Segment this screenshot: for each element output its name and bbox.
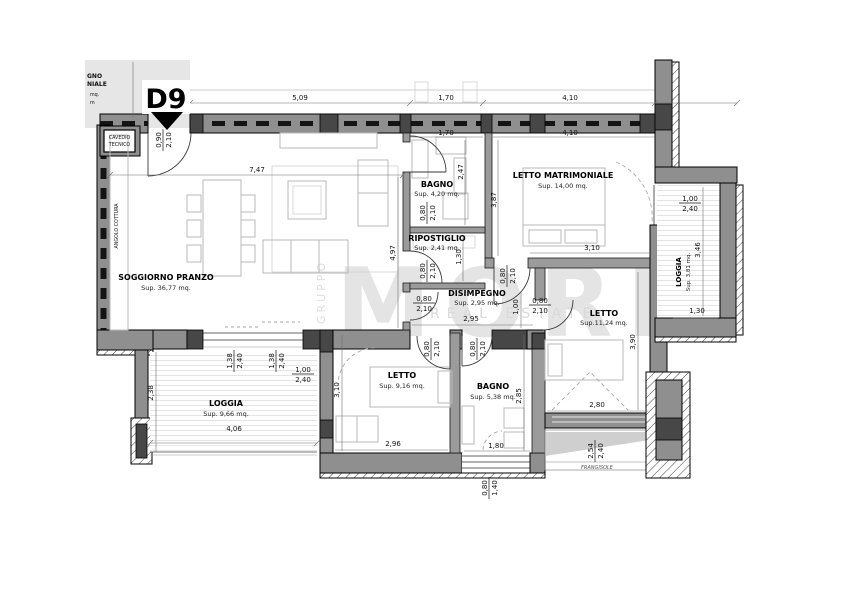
room-label-bagno1: BAGNO	[421, 180, 454, 189]
door-h: 2,10	[416, 305, 432, 313]
win-w: 1,38	[268, 353, 276, 369]
win-w: 0,80	[481, 480, 489, 496]
win-w: 1,00	[295, 366, 311, 374]
dim-390: 3,90	[629, 334, 637, 350]
cavedio-label-1: CAVEDIO	[109, 135, 131, 141]
win-w: 1,00	[682, 195, 698, 203]
door-w: 0,80	[416, 295, 432, 303]
win-w: 1,38	[226, 353, 234, 369]
room-label-loggia1: LOGGIA	[209, 399, 244, 408]
room-sup-bagno2: Sup. 5,38 mq.	[470, 393, 516, 401]
dim-280: 2,80	[589, 401, 605, 409]
room-sup-letto3: Sup. 9,16 mq.	[379, 382, 425, 390]
legend-line-4: m	[90, 101, 95, 106]
door-w: 0,80	[419, 205, 427, 221]
room-label-bagno2: BAGNO	[477, 382, 510, 391]
room-sup-letto-matrimoniale: Sup. 14,00 mq.	[538, 182, 588, 190]
dim-509: 5,09	[292, 94, 308, 102]
dim-310-letto3: 3,10	[333, 382, 341, 398]
frangisole-label: FRANGISOLE	[581, 465, 614, 471]
marker-text: D9	[145, 84, 186, 115]
door-h: 2,10	[479, 341, 487, 357]
room-label-letto2: LETTO	[590, 309, 619, 318]
win-h: 2,40	[597, 443, 605, 459]
dim-100-disimpegno: 1,00	[512, 299, 520, 315]
cavedio-box	[104, 130, 135, 152]
legend-line-1: GNO	[87, 73, 102, 80]
room-sup-bagno1: Sup. 4,20 mq.	[414, 190, 460, 198]
door-h: 2,10	[433, 341, 441, 357]
room-label-soggiorno: SOGGIORNO PRANZO	[118, 273, 214, 282]
win-w: 2,54	[587, 443, 595, 459]
dim-387: 3,87	[490, 192, 498, 208]
entry-h: 2,10	[165, 132, 173, 148]
room-sup-loggia1: Sup. 9,66 mq.	[203, 410, 249, 418]
room-label-angolo-cottura: ANGOLO COTTURA	[114, 203, 120, 249]
dim-346: 3,46	[694, 242, 702, 258]
dim-170-top: 1,70	[438, 94, 454, 102]
dim-238: 2,38	[147, 385, 155, 401]
dim-247: 2,47	[457, 164, 465, 180]
dim-747: 7,47	[249, 166, 265, 174]
door-w: 0,80	[423, 341, 431, 357]
win-h: 2,40	[278, 353, 286, 369]
dim-406: 4,06	[226, 425, 242, 433]
door-w: 0,80	[419, 263, 427, 279]
room-sup-letto2: Sup.11,24 mq.	[580, 319, 628, 327]
win-h: 2,40	[682, 205, 698, 213]
dim-130-loggia: 1,30	[689, 307, 705, 315]
legend-line-3: mq.	[90, 93, 99, 98]
dim-296: 2,96	[385, 440, 401, 448]
dim-497: 4,97	[389, 245, 397, 261]
door-w: 0,80	[469, 341, 477, 357]
watermark-top: GRUPPO	[315, 260, 328, 324]
door-h: 2,10	[429, 205, 437, 221]
win-h: 1,40	[491, 480, 499, 496]
room-label-disimpegno: DISIMPEGNO	[448, 289, 506, 298]
dim-310-lettomat: 3,10	[584, 244, 600, 252]
cavedio-label-2: TECNICO	[108, 142, 131, 148]
room-label-loggia2: LOGGIA	[675, 257, 683, 287]
dim-180: 1,80	[488, 442, 504, 450]
dim-410-top: 4,10	[562, 94, 578, 102]
win-h: 2,40	[236, 353, 244, 369]
dim-170-inner: 1,70	[438, 129, 454, 137]
door-h: 2,10	[532, 307, 548, 315]
door-h: 2,10	[509, 268, 517, 284]
door-w: 0,80	[532, 297, 548, 305]
floor-plan-page: GRUPPO MORE REAL ESTATE	[0, 0, 850, 600]
room-sup-ripostiglio: Sup. 2,41 mq.	[414, 244, 460, 252]
legend-line-2: NIALE	[87, 81, 107, 88]
floor-plan-drawing: GRUPPO MORE REAL ESTATE	[0, 0, 850, 600]
room-sup-soggiorno: Sup. 36,77 mq.	[141, 284, 191, 292]
room-label-ripostiglio: RIPOSTIGLIO	[408, 234, 466, 243]
dim-295: 2,95	[463, 315, 479, 323]
room-label-letto3: LETTO	[388, 371, 417, 380]
door-h: 2,10	[429, 263, 437, 279]
entry-w: 0,90	[155, 132, 163, 148]
dim-410-inner: 4,10	[562, 129, 578, 137]
room-sup-loggia2: Sup. 3,81 mq.	[686, 252, 692, 291]
dim-285: 2,85	[515, 388, 523, 404]
room-sup-disimpegno: Sup. 2,95 mq.	[454, 299, 500, 307]
win-h: 2,40	[295, 376, 311, 384]
room-label-letto-matrimoniale: LETTO MATRIMONIALE	[513, 171, 614, 180]
door-w: 0,80	[499, 268, 507, 284]
